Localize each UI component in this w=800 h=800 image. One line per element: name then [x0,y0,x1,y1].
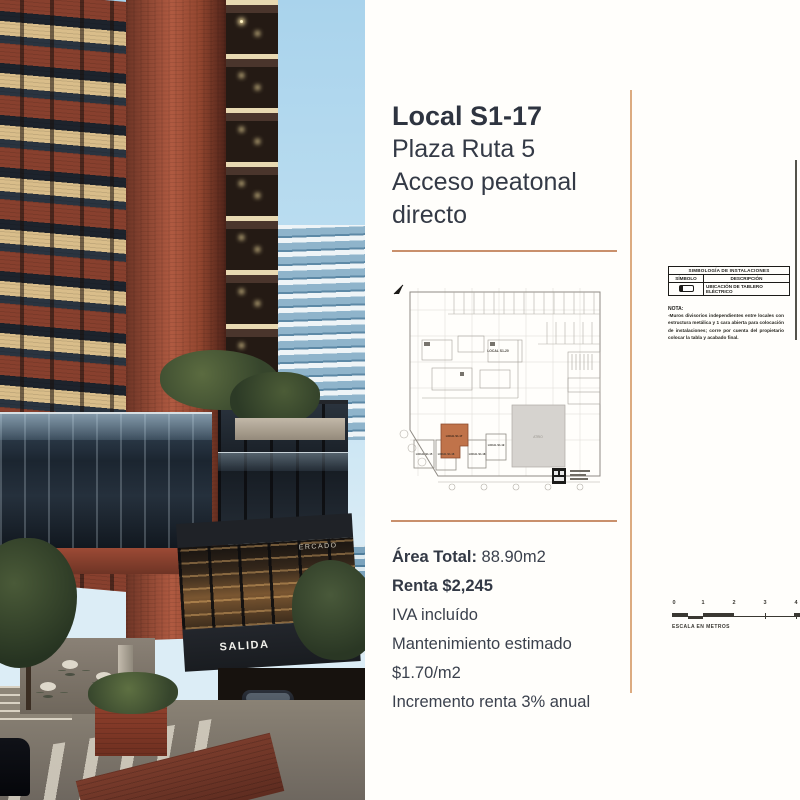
page-subtitle-plaza: Plaza Ruta 5 [392,133,642,166]
legend-col-desc: DESCRIPCIÓN [704,275,790,283]
plan-inner-rooms [422,336,600,404]
salida-sign: SALIDA [219,639,270,654]
legend-title: SIMBOLOGÍA DE INSTALACIONES [669,267,790,275]
scale-segment [672,613,688,616]
electrical-panel-icon [679,285,694,292]
unit-details: Área Total: 88.90m2 Renta $2,245 IVA inc… [392,543,642,717]
page-title: Local S1-17 [392,100,642,133]
scale-segment [688,616,704,619]
plan-note: NOTA: -Muros divisorios independientes e… [668,306,784,341]
detail-area: Área Total: 88.90m2 [392,543,642,572]
adjacent-sheet-edge [795,160,797,340]
scale-tick-0: 0 [672,600,675,606]
brochure-page: ERCADO SALIDA EN [0,0,800,800]
scale-label: ESCALA EN METROS [672,624,730,630]
scale-tick-2: 2 [732,600,735,606]
planter-shrubs [88,672,178,714]
detail-mantenimiento: Mantenimiento estimado $1.70/m2 [392,630,642,688]
scale-bar: 0 1 2 3 4 ESCALA EN METROS [672,600,800,640]
plan-logo [552,468,590,484]
scale-tick-mark [765,613,766,619]
detail-iva: IVA incluído [392,601,642,630]
plan-label-s118: LOCAL S1-18 [469,452,486,456]
detail-incremento: Incremento renta 3% anual [392,688,642,717]
plan-label-s119: LOCAL S1-19 [488,443,505,447]
plan-label-s120: LOCAL S1-20 [487,349,509,353]
legend-table: SIMBOLOGÍA DE INSTALACIONES SÍMBOLO DESC… [668,266,790,296]
cafe-table [40,682,56,691]
plan-fixtures [424,342,495,376]
balcony-stack [226,0,278,385]
upper-retail-railing [218,452,348,471]
note-text: -Muros divisorios independientes entre l… [668,312,784,341]
scale-bar-graphic [672,613,800,619]
legend-symbol-cell [669,283,704,296]
detail-renta-value: Renta $2,245 [392,577,493,595]
title-block: Local S1-17 Plaza Ruta 5 Acceso peatonal… [392,100,642,232]
detail-area-label: Área Total: [392,548,477,566]
scale-tick-4: 4 [794,600,797,606]
plan-outer-wall [410,292,600,476]
terrace-planter-wall [235,418,345,440]
scale-tick-1: 1 [701,600,704,606]
plan-label-s115: LOCAL S1-15 [416,452,433,456]
floor-plan: LOCAL S1-20 ATRIO LOCAL S1-15 LOCAL S1-1… [388,278,618,500]
north-arrow-icon [394,285,403,294]
balcony-lights [240,20,243,23]
installations-legend: SIMBOLOGÍA DE INSTALACIONES SÍMBOLO DESC… [668,266,790,341]
scale-segment [794,613,800,616]
legend-row-desc: UBICACIÓN DE TABLERO ELÉCTRICO [704,283,790,296]
detail-area-value: 88.90m2 [477,548,546,566]
detail-renta: Renta $2,245 [392,572,642,601]
building-render-photo: ERCADO SALIDA EN [0,0,365,800]
glass-railing [0,412,212,440]
cafe-table [62,660,78,669]
plan-grid [410,288,600,476]
legend-col-symbol: SÍMBOLO [669,275,704,283]
divider-top [392,250,617,252]
plan-label-s116: LOCAL S1-16 [438,452,455,456]
parked-car [0,738,30,796]
plan-atrium-label: ATRIO [533,435,543,439]
scale-tick-3: 3 [763,600,766,606]
divider-bottom [391,520,617,522]
floor-plan-drawing: LOCAL S1-20 ATRIO LOCAL S1-15 LOCAL S1-1… [388,278,618,500]
page-subtitle-access: Acceso peatonal directo [392,166,642,232]
plan-label-s117: LOCAL S1-17 [446,434,463,438]
scale-segment [703,613,734,616]
